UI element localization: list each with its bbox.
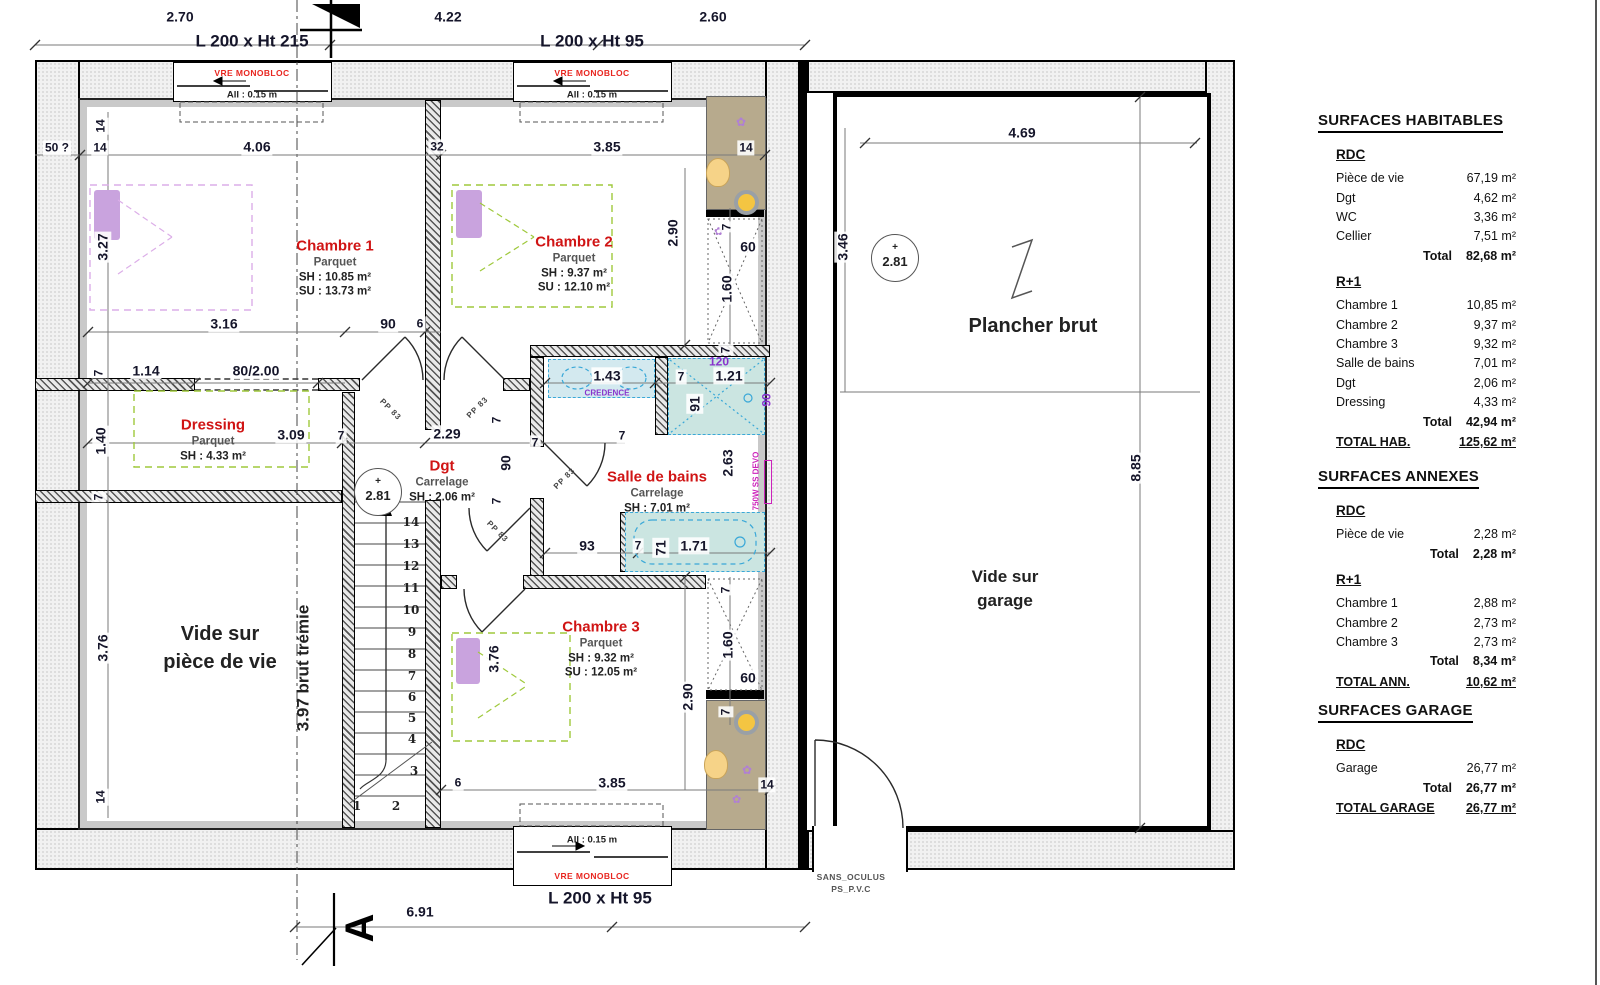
table-row: Chambre 39,32 m²: [1336, 335, 1516, 354]
dim-label: 8.85: [1127, 452, 1144, 483]
dim-label: 6: [453, 775, 464, 790]
dim-label: 7: [617, 428, 628, 443]
row-label: Pièce de vie: [1336, 169, 1404, 188]
row-label: Chambre 2: [1336, 316, 1398, 335]
stair-step-number: 3: [410, 765, 418, 777]
window-3-type: VRE MONOBLOC: [554, 872, 629, 881]
dim-label: 91: [686, 394, 703, 414]
room-su: SU : 12.05 m²: [562, 665, 640, 679]
section-heading-rdc: RDC: [1336, 503, 1523, 519]
stair-step-number: 11: [403, 582, 420, 594]
room-label: Chambre 3 Parquet SH : 9.32 m² SU : 12.0…: [562, 618, 640, 679]
dim-label: 7: [718, 345, 733, 356]
table-title: SURFACES GARAGE: [1318, 702, 1473, 723]
table-row: Salle de bains7,01 m²: [1336, 354, 1516, 373]
table-row: Dressing4,33 m²: [1336, 393, 1516, 412]
garage-exit-door-label: SANS_OCULUSPS_P.V.C: [817, 872, 886, 896]
window-1-type: VRE MONOBLOC: [214, 69, 289, 78]
section-heading-r1: R+1: [1336, 274, 1523, 290]
dim-label: 7: [489, 496, 504, 507]
room-sh: SH : 9.32 m²: [562, 651, 640, 665]
vide-garage-label: Vide surgarage: [972, 565, 1039, 613]
room-name: Dressing: [180, 417, 246, 436]
dim-label: 14: [758, 777, 775, 792]
table-row: Pièce de vie67,19 m²: [1336, 169, 1516, 188]
dim-label: 1.71: [678, 537, 709, 554]
room-label: Dgt Carrelage SH : 2.06 m²: [409, 458, 475, 505]
row-label: Chambre 1: [1336, 296, 1398, 315]
dim-label: 3.16: [208, 315, 239, 332]
level-value: 2.81: [882, 254, 907, 269]
total-row: Total82,68 m²: [1336, 247, 1516, 266]
dim-label: 3.27: [94, 231, 111, 262]
dim-label: 4.69: [1006, 124, 1037, 141]
row-value: 9,32 m²: [1474, 335, 1516, 354]
table-row: Chambre 29,37 m²: [1336, 316, 1516, 335]
page-edge-line: [1595, 0, 1597, 985]
dim-label: 7: [633, 538, 644, 553]
dim-label: 1.14: [130, 362, 161, 379]
row-value: 10,85 m²: [1467, 296, 1516, 315]
stair-step-number: 12: [403, 560, 420, 572]
row-value: 4,33 m²: [1474, 393, 1516, 412]
room-sh: SH : 4.33 m²: [180, 449, 246, 463]
row-value: 26,77 m²: [1467, 759, 1516, 778]
surfaces-annexes-table: SURFACES ANNEXES RDC Pièce de vie2,28 m²…: [1318, 468, 1523, 692]
row-value: 2,73 m²: [1474, 614, 1516, 633]
dim-label: 4.22: [432, 8, 463, 25]
dim-label: 3.76: [94, 632, 111, 663]
window-3-size: L 200 x Ht 95: [548, 890, 652, 907]
window-2-type: VRE MONOBLOC: [554, 69, 629, 78]
row-label: Garage: [1336, 759, 1378, 778]
row-value: 2,28 m²: [1474, 525, 1516, 544]
total-row: Total2,28 m²: [1336, 545, 1516, 564]
dim-label: 93: [577, 537, 597, 554]
dim-label: 14: [93, 788, 108, 805]
room-name: Chambre 3: [562, 618, 640, 637]
level-plus: +: [355, 477, 401, 487]
total-row: Total8,34 m²: [1336, 652, 1516, 671]
dim-label: 71: [652, 538, 669, 558]
dim-label: 7: [91, 492, 106, 503]
dim-label: 1.60: [719, 629, 736, 660]
stair-step-number: 1: [353, 800, 361, 812]
table-title: SURFACES ANNEXES: [1318, 468, 1479, 489]
row-label: Cellier: [1336, 227, 1371, 246]
stair-step-number: 7: [408, 670, 416, 682]
dim-label: 14: [93, 117, 108, 134]
dim-label: 750W SS DEVO: [753, 451, 762, 512]
section-letter: A: [340, 914, 380, 943]
dim-label: 4.06: [241, 138, 272, 155]
room-su: SU : 13.73 m²: [296, 284, 374, 298]
row-value: 2,06 m²: [1474, 374, 1516, 393]
grand-total-row: TOTAL GARAGE26,77 m²: [1336, 799, 1516, 818]
table-rows: Pièce de vie67,19 m²Dgt4,62 m²WC3,36 m²C…: [1318, 169, 1523, 247]
row-value: 3,36 m²: [1474, 208, 1516, 227]
room-name: Dgt: [409, 458, 475, 477]
dim-label: 3.85: [591, 138, 622, 155]
table-row: Chambre 32,73 m²: [1336, 633, 1516, 652]
surfaces-habitables-table: SURFACES HABITABLES RDC Pièce de vie67,1…: [1318, 112, 1523, 452]
dim-label: 1.40: [92, 425, 109, 456]
row-value: 7,51 m²: [1474, 227, 1516, 246]
dim-label: 2.90: [679, 681, 696, 712]
dim-label: 60: [738, 238, 758, 255]
stair-step-number: 14: [403, 516, 420, 528]
row-label: WC: [1336, 208, 1357, 227]
room-su: SU : 12.10 m²: [535, 280, 613, 294]
stair-step-number: 4: [408, 733, 416, 745]
row-label: Salle de bains: [1336, 354, 1415, 373]
table-title: SURFACES HABITABLES: [1318, 112, 1503, 133]
window-2-sill: All : 0.15 m: [567, 90, 617, 100]
row-value: 67,19 m²: [1467, 169, 1516, 188]
table-row: WC3,36 m²: [1336, 208, 1516, 227]
row-label: Chambre 3: [1336, 633, 1398, 652]
dim-label: 2.70: [164, 8, 195, 25]
dim-label: 7: [719, 222, 734, 233]
dim-label: 7: [336, 428, 347, 443]
stair-step-number: 6: [408, 691, 416, 703]
dim-label: 6.91: [404, 903, 435, 920]
row-value: 7,01 m²: [1474, 354, 1516, 373]
dim-label: 80/2.00: [231, 362, 282, 379]
row-label: Chambre 3: [1336, 335, 1398, 354]
dim-label: 7: [530, 435, 541, 450]
table-rows: Pièce de vie2,28 m²: [1318, 525, 1523, 544]
table-rows: Garage26,77 m²: [1318, 759, 1523, 778]
window-1-size: L 200 x Ht 215: [195, 33, 308, 50]
row-label: Dressing: [1336, 393, 1385, 412]
dim-label: CREDENCE: [584, 390, 631, 399]
row-value: 2,73 m²: [1474, 633, 1516, 652]
table-rows: Chambre 12,88 m²Chambre 22,73 m²Chambre …: [1318, 594, 1523, 652]
floor-plan-page: ✿ ✿ ✿ ✿: [0, 0, 1600, 985]
table-row: Garage26,77 m²: [1336, 759, 1516, 778]
dim-label: 1.21: [713, 367, 744, 384]
stair-step-number: 13: [403, 538, 420, 550]
room-material: Parquet: [296, 256, 374, 270]
dim-label: 2.29: [431, 425, 462, 442]
dim-label: PP 83: [550, 464, 579, 493]
room-material: Parquet: [562, 637, 640, 651]
dim-label: 7: [91, 368, 106, 379]
level-marker-dgt: + 2.81: [354, 468, 402, 516]
dim-label: 50 ?: [43, 140, 71, 155]
window-2-size: L 200 x Ht 95: [540, 33, 644, 50]
row-label: Chambre 1: [1336, 594, 1398, 613]
table-row: Chambre 12,88 m²: [1336, 594, 1516, 613]
room-sh: SH : 2.06 m²: [409, 490, 475, 504]
room-sh: SH : 9.37 m²: [535, 266, 613, 280]
dim-label: 90: [497, 453, 514, 473]
level-plus: +: [872, 243, 918, 253]
table-row: Cellier7,51 m²: [1336, 227, 1516, 246]
stair-step-number: 9: [408, 626, 416, 638]
dim-label: 32: [428, 139, 445, 154]
dim-label: 3.85: [596, 774, 627, 791]
room-material: Carrelage: [409, 476, 475, 490]
level-marker-garage: + 2.81: [871, 234, 919, 282]
table-rows: Chambre 110,85 m²Chambre 29,37 m²Chambre…: [1318, 296, 1523, 412]
window-1-sill: All : 0.15 m: [227, 90, 277, 100]
room-label: Salle de bains Carrelage SH : 7.01 m²: [607, 469, 707, 516]
total-row: Total42,94 m²: [1336, 413, 1516, 432]
dim-label: 3.09: [275, 426, 306, 443]
dim-label: 2.63: [719, 447, 736, 478]
row-label: Dgt: [1336, 189, 1355, 208]
room-label: Chambre 2 Parquet SH : 9.37 m² SU : 12.1…: [535, 233, 613, 294]
grand-total-row: TOTAL HAB.125,62 m²: [1336, 433, 1516, 452]
dim-label: 120: [707, 354, 731, 369]
dim-label: 60: [738, 669, 758, 686]
dim-label: 2.90: [664, 217, 681, 248]
section-heading-rdc: RDC: [1336, 147, 1523, 163]
dim-label: 90: [378, 315, 398, 332]
table-row: Chambre 110,85 m²: [1336, 296, 1516, 315]
dim-label: 6: [415, 316, 426, 331]
dim-label: 7: [676, 369, 687, 384]
total-row: Total26,77 m²: [1336, 779, 1516, 798]
section-heading-r1: R+1: [1336, 572, 1523, 588]
room-label: Chambre 1 Parquet SH : 10.85 m² SU : 13.…: [296, 237, 374, 298]
surfaces-garage-table: SURFACES GARAGE RDC Garage26,77 m² Total…: [1318, 702, 1523, 818]
dim-label: 1.60: [718, 273, 735, 304]
room-sh: SH : 7.01 m²: [607, 501, 707, 515]
stair-step-number: 8: [408, 648, 416, 660]
row-value: 9,37 m²: [1474, 316, 1516, 335]
dim-label: 7: [489, 415, 504, 426]
dim-label: 1.43: [591, 367, 622, 384]
table-row: Dgt4,62 m²: [1336, 189, 1516, 208]
grand-total-row: TOTAL ANN.10,62 m²: [1336, 673, 1516, 692]
tremie-label: 3.97 brut trémie: [295, 605, 312, 732]
room-name: Salle de bains: [607, 469, 707, 488]
room-name: Chambre 2: [535, 233, 613, 252]
row-value: 4,62 m²: [1474, 189, 1516, 208]
stair-step-number: 10: [403, 604, 420, 616]
table-row: Chambre 22,73 m²: [1336, 614, 1516, 633]
dim-label: 3.76: [485, 643, 502, 674]
row-label: Dgt: [1336, 374, 1355, 393]
room-name: Chambre 1: [296, 237, 374, 256]
room-material: Carrelage: [607, 487, 707, 501]
room-material: Parquet: [535, 252, 613, 266]
dim-label: PP 83: [482, 517, 511, 546]
table-row: Dgt2,06 m²: [1336, 374, 1516, 393]
row-label: Chambre 2: [1336, 614, 1398, 633]
table-row: Pièce de vie2,28 m²: [1336, 525, 1516, 544]
dim-label: 7: [718, 585, 733, 596]
dim-label: 90: [759, 391, 774, 408]
room-material: Parquet: [180, 435, 246, 449]
section-heading-rdc: RDC: [1336, 737, 1523, 753]
dim-label: 14: [91, 140, 108, 155]
window-3-sill: All : 0.15 m: [567, 835, 617, 845]
level-value: 2.81: [365, 488, 390, 503]
dim-label: PP 83: [375, 395, 404, 424]
vide-piece-label: Vide surpièce de vie: [163, 620, 276, 676]
dim-label: 7: [718, 707, 733, 718]
dim-label: 2.60: [697, 8, 728, 25]
row-value: 2,88 m²: [1474, 594, 1516, 613]
dim-label: 3.46: [834, 231, 851, 262]
dim-label: PP 83: [463, 393, 492, 422]
row-label: Pièce de vie: [1336, 525, 1404, 544]
stair-step-number: 5: [408, 712, 416, 724]
dim-label: 14: [737, 140, 754, 155]
stair-step-number: 2: [392, 800, 400, 812]
room-sh: SH : 10.85 m²: [296, 270, 374, 284]
room-label: Dressing Parquet SH : 4.33 m²: [180, 417, 246, 464]
plancher-brut-label: Plancher brut: [969, 312, 1098, 340]
